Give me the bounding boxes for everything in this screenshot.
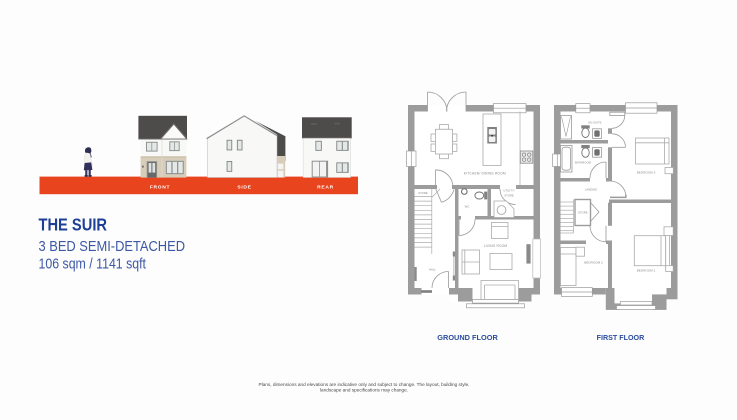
svg-text:WC: WC <box>465 204 470 208</box>
svg-text:FRONT: FRONT <box>150 185 170 191</box>
svg-text:LANDING: LANDING <box>585 187 597 191</box>
svg-text:SIDE: SIDE <box>237 185 251 191</box>
svg-text:EN SUITE: EN SUITE <box>589 121 602 125</box>
svg-text:STORE: STORE <box>418 191 428 195</box>
svg-text:THE SUIR: THE SUIR <box>39 215 108 235</box>
svg-text:GROUND FLOOR: GROUND FLOOR <box>437 333 498 342</box>
svg-text:REAR: REAR <box>317 185 334 191</box>
svg-text:STORE: STORE <box>578 210 588 214</box>
svg-text:106 sqm / 1141 sqft: 106 sqm / 1141 sqft <box>39 257 147 273</box>
svg-text:HALL: HALL <box>429 267 436 271</box>
svg-text:landscape and specifications m: landscape and specifications may change. <box>320 387 408 392</box>
svg-text:LIVING ROOM: LIVING ROOM <box>484 244 508 248</box>
svg-text:BATHROOM: BATHROOM <box>575 161 592 165</box>
svg-text:STORE: STORE <box>504 193 514 197</box>
svg-text:Plans, dimensions and elevatio: Plans, dimensions and elevations are ind… <box>259 382 470 387</box>
svg-text:BEDROOM 2: BEDROOM 2 <box>584 260 603 264</box>
svg-text:FIRST FLOOR: FIRST FLOOR <box>597 333 645 342</box>
svg-text:BEDROOM 1: BEDROOM 1 <box>637 268 656 272</box>
svg-text:3 BED SEMI-DETACHED: 3 BED SEMI-DETACHED <box>39 238 186 255</box>
svg-text:UTILITY/: UTILITY/ <box>503 189 514 193</box>
svg-text:BEDROOM 3: BEDROOM 3 <box>637 171 656 175</box>
svg-text:KITCHEN/ DINING ROOM: KITCHEN/ DINING ROOM <box>464 172 506 176</box>
